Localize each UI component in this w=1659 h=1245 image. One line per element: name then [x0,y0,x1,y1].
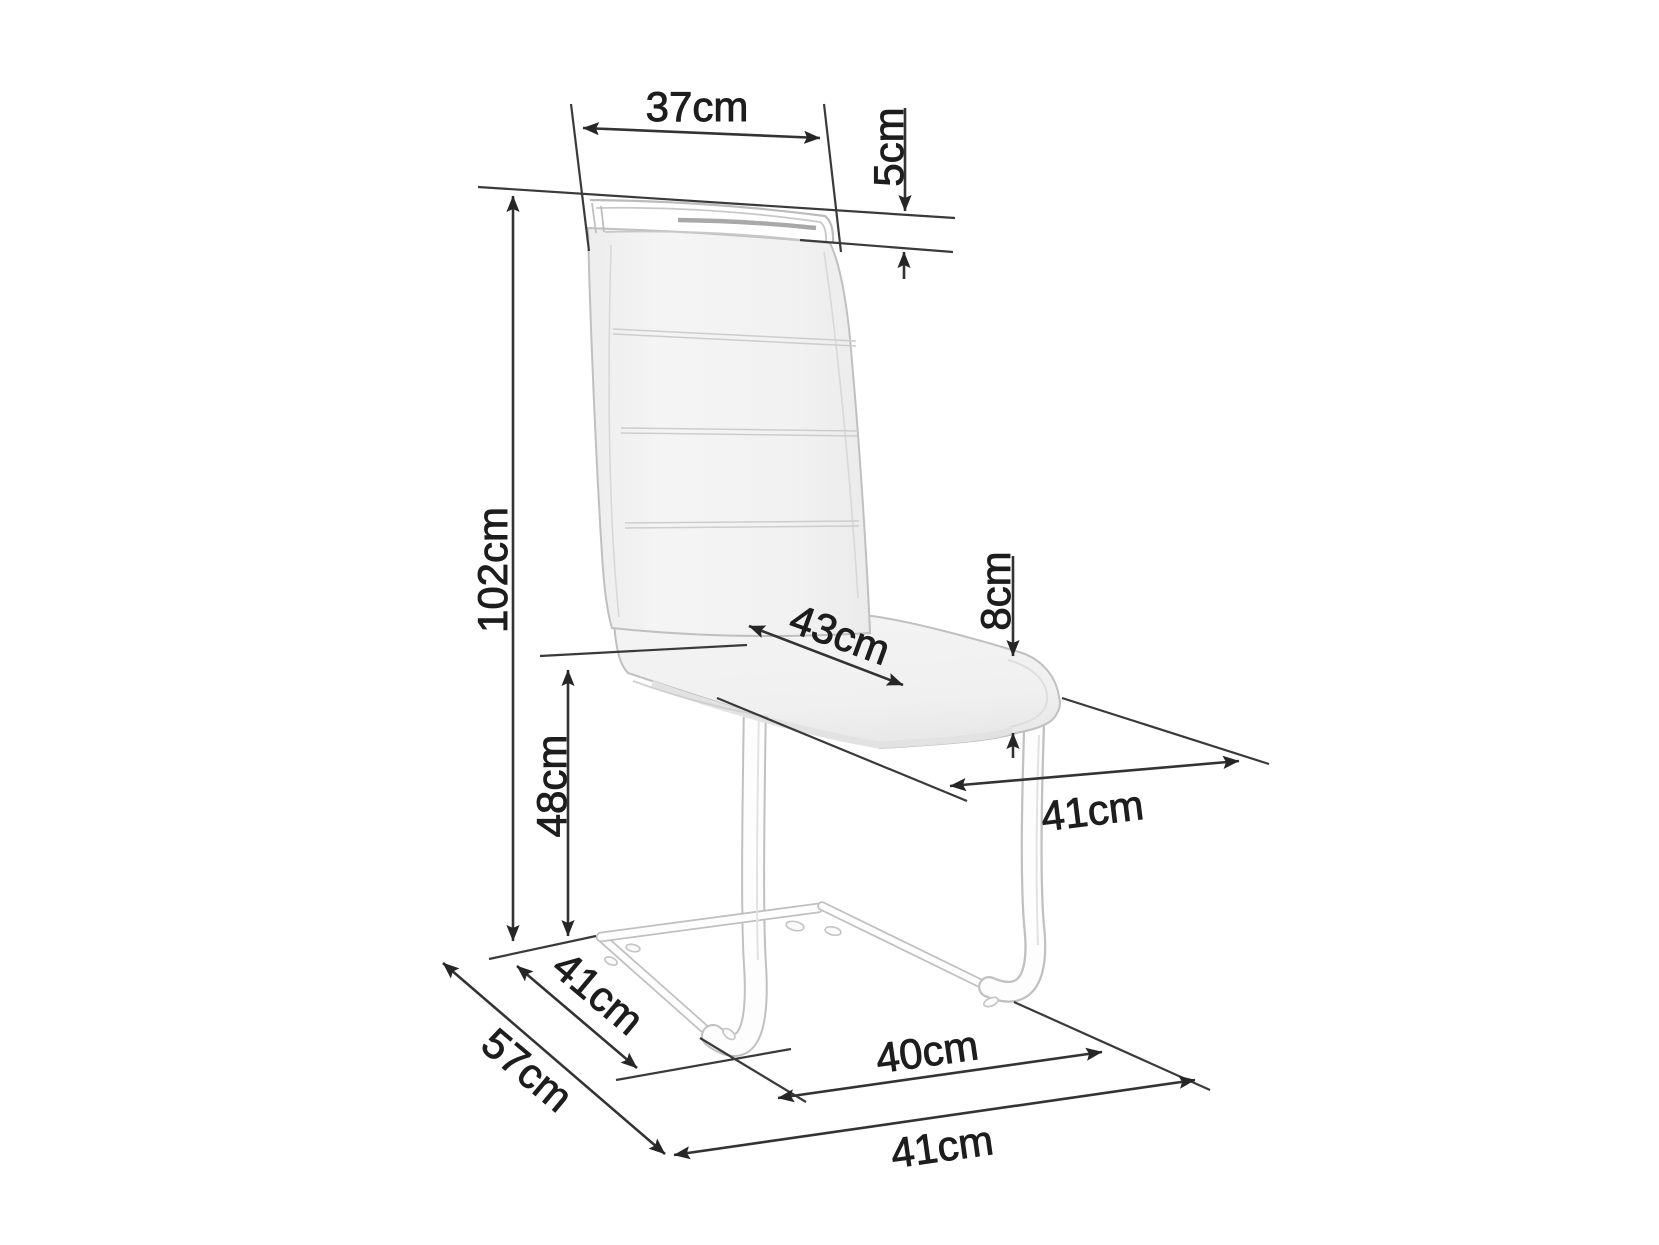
svg-text:102cm: 102cm [469,507,516,633]
svg-text:48cm: 48cm [528,735,575,838]
svg-text:8cm: 8cm [972,551,1019,630]
svg-text:5cm: 5cm [865,107,912,186]
svg-text:37cm: 37cm [646,83,749,130]
